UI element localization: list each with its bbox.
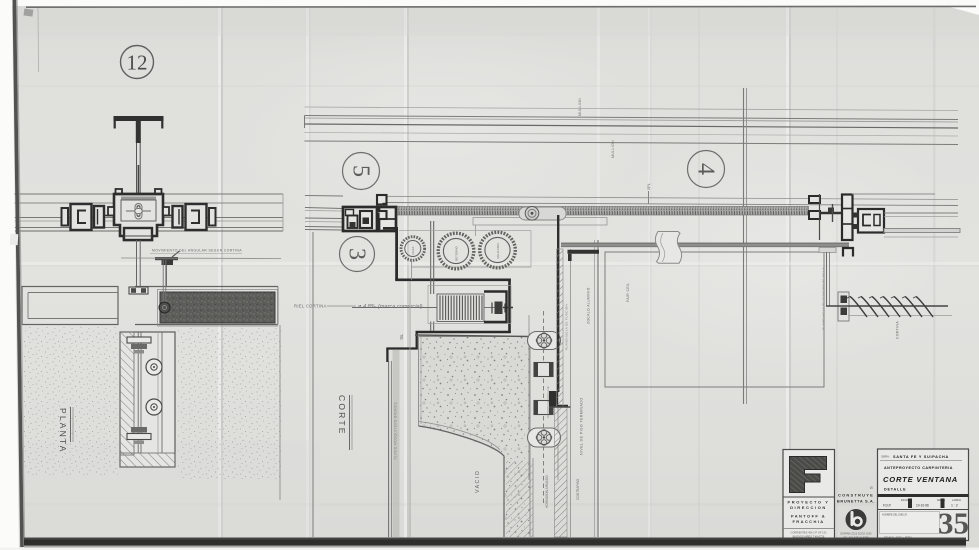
svg-text:FAIR CEIL: FAIR CEIL	[626, 282, 630, 302]
svg-text:ANTEPROYECTO CARPINTERIA: ANTEPROYECTO CARPINTERIA	[884, 466, 953, 470]
svg-text:RETORNO: RETORNO	[455, 245, 459, 261]
svg-text:PLANCHUELA DE FIJACION DE SILL: PLANCHUELA DE FIJACION DE SILLA	[822, 267, 826, 330]
svg-text:MOVIMIENTO DEL ANGULAR SEGUN C: MOVIMIENTO DEL ANGULAR SEGUN CORTINA	[152, 249, 242, 253]
svg-text:F.D.P.: F.D.P.	[883, 504, 891, 508]
svg-text:OBRA:: OBRA:	[881, 455, 890, 459]
svg-text:CORTE VENTANA: CORTE VENTANA	[883, 475, 958, 484]
svg-text:CONTRAPISO: CONTRAPISO	[576, 478, 580, 500]
svg-text:CORTE: CORTE	[337, 395, 347, 436]
svg-text:HORMIGON ARMADO: HORMIGON ARMADO	[545, 475, 549, 508]
svg-text:SANTA FE Y SUIPACHA: SANTA FE Y SUIPACHA	[893, 455, 949, 459]
svg-text:FRACCHIA: FRACCHIA	[792, 519, 824, 524]
svg-text:VACIO: VACIO	[475, 470, 481, 493]
svg-text:3: 3	[344, 248, 370, 260]
svg-text:AGUA FRIA: AGUA FRIA	[496, 243, 500, 259]
svg-text:DETALLE: DETALLE	[884, 488, 906, 492]
svg-text:PROYECTO Y: PROYECTO Y	[787, 500, 829, 505]
svg-text:CONSTRUYE: CONSTRUYE	[838, 493, 874, 498]
svg-text:ZOCALO ALUMINIO: ZOCALO ALUMINIO	[587, 287, 591, 324]
svg-text:NIVEL DE PISO TERMINADO: NIVEL DE PISO TERMINADO	[580, 397, 584, 455]
svg-text:4: 4	[693, 163, 719, 175]
svg-text:PLANTA: PLANTA	[58, 408, 68, 454]
svg-text:RIEL CORTINA: RIEL CORTINA	[294, 304, 327, 309]
svg-text:ø 4.8‰ (marca comercial): ø 4.8‰ (marca comercial)	[358, 304, 423, 310]
svg-text:B: B	[870, 485, 873, 490]
svg-text:DIRECCION: DIRECCION	[790, 505, 827, 510]
svg-text:TEL: TEL	[400, 334, 404, 340]
svg-text:LAMINA: LAMINA	[952, 499, 961, 502]
svg-text:NOMBRE DEL DIBUJO: NOMBRE DEL DIBUJO	[882, 514, 907, 517]
svg-text:SPL: SPL	[647, 183, 651, 190]
svg-text:MULLION: MULLION	[578, 98, 582, 116]
svg-text:PLANCHUELA DE FIJACION: PLANCHUELA DE FIJACION	[565, 304, 569, 350]
svg-text:CORRIENTES 456 2 P OF 153: CORRIENTES 456 2 P OF 153	[791, 531, 828, 535]
svg-text:MULLION: MULLION	[611, 140, 615, 158]
svg-text:35: 35	[938, 506, 969, 541]
svg-text:BRUNETTA S.A.: BRUNETTA S.A.	[837, 499, 875, 504]
svg-text:CORTINA: CORTINA	[896, 321, 900, 339]
svg-text:10-10-66: 10-10-66	[916, 504, 929, 508]
svg-text:5: 5	[348, 165, 374, 177]
svg-text:TEJIDO MOSQUITERO BRONCE: TEJIDO MOSQUITERO BRONCE	[394, 402, 398, 460]
svg-text:PANTOFF &: PANTOFF &	[791, 514, 826, 519]
svg-text:12: 12	[127, 51, 148, 75]
svg-text:CALEF: CALEF	[411, 246, 415, 255]
